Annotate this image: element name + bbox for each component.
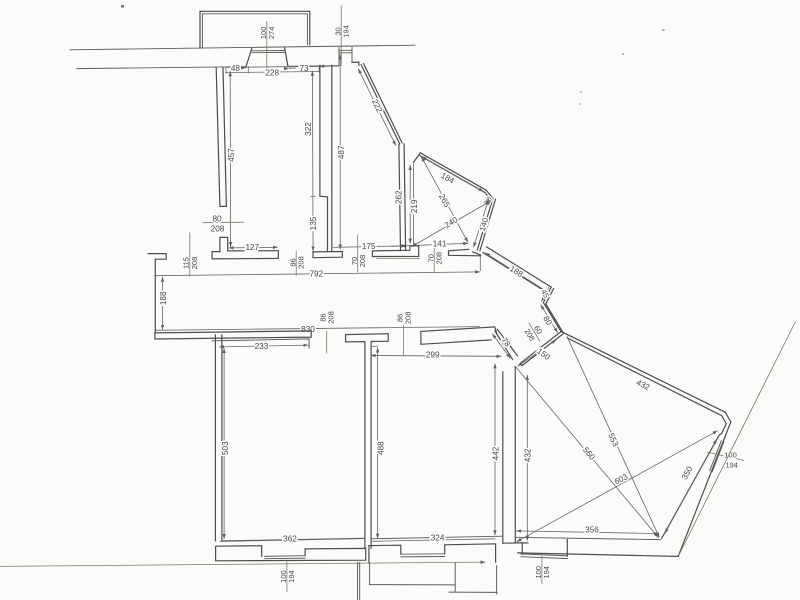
svg-text:127: 127 (245, 243, 259, 252)
svg-text:488: 488 (376, 441, 385, 455)
svg-text:141: 141 (433, 239, 447, 248)
svg-text:362: 362 (283, 535, 297, 544)
svg-text:262: 262 (395, 190, 404, 204)
svg-text:150: 150 (535, 347, 552, 363)
svg-text:322: 322 (304, 122, 313, 136)
svg-text:48: 48 (231, 64, 241, 73)
svg-text:208: 208 (327, 311, 336, 324)
svg-text:140: 140 (478, 216, 491, 232)
svg-text:487: 487 (337, 145, 346, 159)
svg-text:80: 80 (212, 214, 222, 223)
svg-text:228: 228 (265, 69, 279, 78)
svg-text:208: 208 (211, 225, 225, 234)
svg-text:457: 457 (227, 148, 236, 162)
svg-text:219: 219 (410, 199, 419, 213)
svg-text:432: 432 (524, 448, 533, 462)
svg-text:184: 184 (439, 171, 456, 186)
svg-text:175: 175 (362, 242, 376, 251)
svg-text:432: 432 (635, 378, 652, 392)
svg-text:208: 208 (434, 252, 443, 265)
svg-text:324: 324 (431, 533, 445, 542)
svg-text:299: 299 (426, 351, 440, 360)
svg-text:792: 792 (309, 270, 323, 279)
svg-text:188: 188 (159, 291, 168, 305)
svg-text:222: 222 (370, 98, 384, 115)
svg-text:442: 442 (491, 446, 500, 460)
svg-text:356: 356 (585, 525, 599, 534)
svg-text:560: 560 (581, 445, 597, 462)
svg-text:274: 274 (267, 27, 276, 40)
svg-text:135: 135 (309, 216, 318, 230)
svg-text:208: 208 (358, 255, 367, 268)
svg-text:194: 194 (542, 566, 551, 579)
svg-text:830: 830 (301, 325, 315, 334)
svg-text:208: 208 (296, 256, 305, 269)
svg-text:503: 503 (221, 441, 230, 455)
svg-text:194: 194 (342, 25, 351, 38)
svg-text:350: 350 (680, 465, 695, 482)
svg-text:194: 194 (287, 570, 296, 583)
svg-text:208: 208 (404, 312, 413, 325)
svg-text:240: 240 (443, 215, 460, 230)
svg-text:233: 233 (255, 342, 269, 351)
svg-text:553: 553 (606, 432, 620, 449)
svg-text:208: 208 (190, 257, 199, 270)
svg-text:265: 265 (437, 192, 452, 209)
svg-text:194: 194 (725, 461, 738, 470)
